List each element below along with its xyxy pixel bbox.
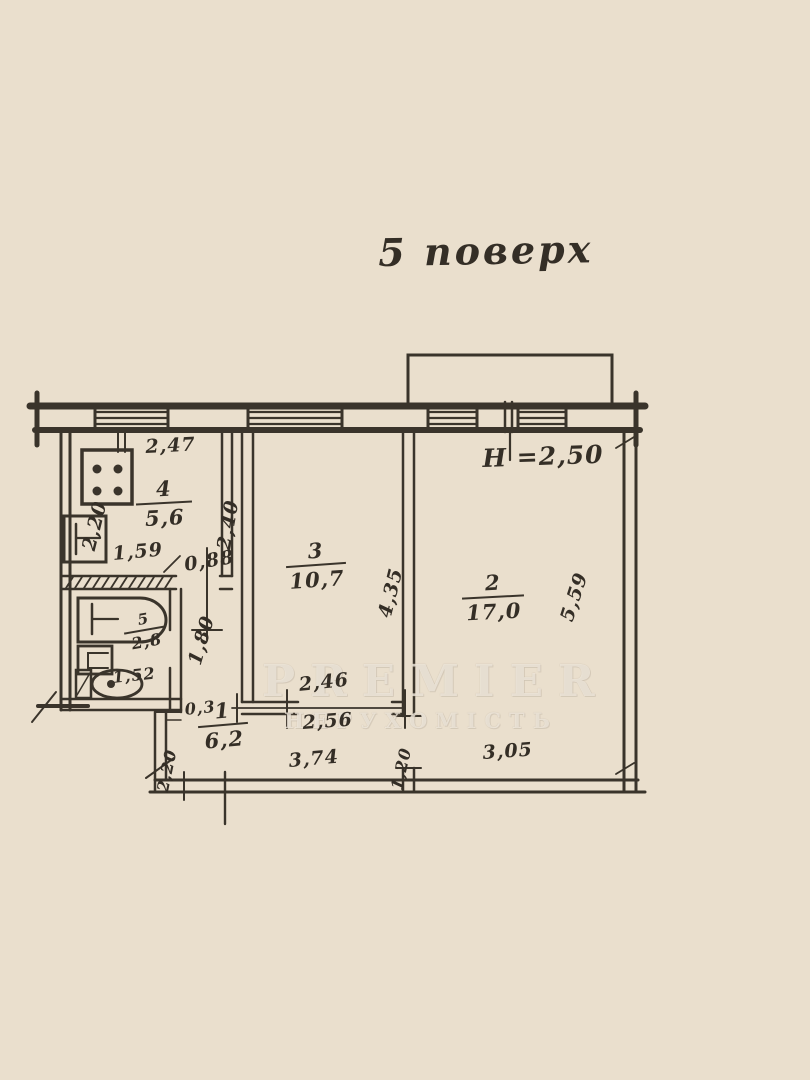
dim-hall-width: 3,74 (288, 748, 340, 771)
window-kitchen (95, 407, 168, 429)
room-label-kitchen: 4 5,6 (135, 477, 194, 530)
window-living (248, 407, 342, 429)
hatched-partition (66, 577, 172, 588)
dim-bathroom-width: 1,59 (112, 541, 164, 564)
room-area: 17,0 (462, 596, 525, 623)
floor-plan-photo: PREMIER НЕРУХОМІСТЬ 5 поверх H =2,50 4 5… (0, 0, 810, 1080)
ceiling-height-label: H =2,50 (482, 442, 604, 471)
room-area: 6,2 (198, 724, 250, 752)
floor-plan-drawing (0, 0, 810, 1080)
room-number: 2 (461, 570, 524, 599)
floor-title: 5 поверх (378, 230, 594, 272)
room-label-living: 3 10,7 (284, 538, 347, 592)
room-label-bathroom: 5 2,8 (121, 609, 169, 654)
stove-icon (82, 450, 132, 504)
dim-bedroom-width: 3,05 (482, 740, 533, 762)
top-wall (30, 393, 645, 445)
dim-wall-thickness: 0,3 (184, 699, 216, 718)
dim-toilet-width: 1,52 (112, 666, 156, 686)
window-bedroom (428, 407, 566, 429)
dim-living-width-bottom: 2,56 (302, 710, 353, 732)
room-area: 10,7 (286, 564, 348, 592)
room-area: 5,6 (136, 503, 193, 530)
dim-living-width-top: 2,46 (298, 671, 350, 695)
outer-walls (32, 430, 645, 792)
dim-kitchen-width: 2,47 (145, 435, 196, 457)
room-number: 4 (135, 477, 192, 506)
bedroom-walls (396, 430, 421, 792)
room-label-bedroom: 2 17,0 (461, 570, 526, 623)
